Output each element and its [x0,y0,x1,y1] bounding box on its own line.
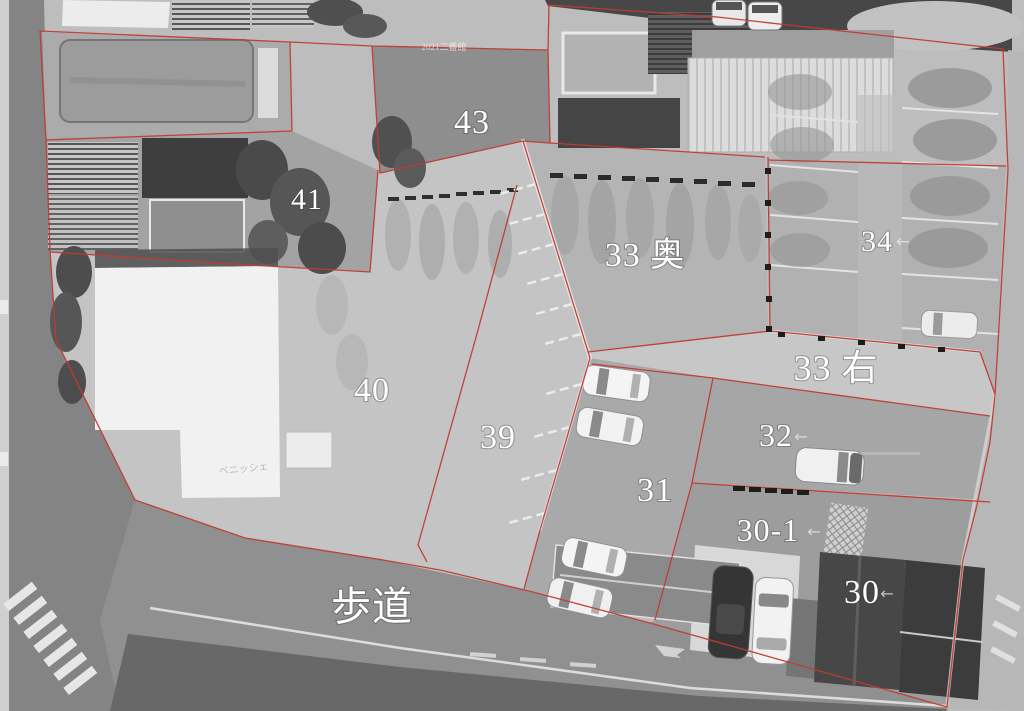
arrow-30-1: ← [807,522,820,541]
arrow-34: ← [896,232,910,252]
curb-mark [0,300,8,314]
roof-ridge [70,80,245,84]
tree [394,148,426,188]
dark-roof-center [558,98,680,148]
arrow-32: ← [794,427,807,446]
gray-roof-41 [150,200,244,252]
label-parcel-30-1: 30-1 [737,512,800,548]
tree [298,222,346,274]
faint-watermark-smudge [860,452,920,455]
label-parcel-31: 31 [637,472,673,509]
small-white-shed [286,432,332,468]
car-30-white [751,577,793,665]
charcoal-house-roof-2 [899,560,985,700]
tree [58,360,86,404]
corrugated-roof-1 [172,0,250,30]
white-strip-building [258,48,278,118]
driveway-34 [858,95,902,340]
aerial-parcel-map: 43 41 40 39 33 奥 34 ← 33 右 32 ← 31 30-1 … [0,0,1024,711]
label-parcel-33-migi: 33 右 [793,348,878,388]
arrow-30: ← [880,584,893,603]
label-sidewalk: 歩道 [331,584,413,629]
label-parcel-39: 39 [480,419,516,456]
map-canvas: 43 41 40 39 33 奥 34 ← 33 右 32 ← 31 30-1 … [0,0,1024,711]
dark-roof-41 [142,138,248,198]
flat-gray-roof [563,33,655,93]
corrugated-roof-41b [48,196,138,250]
label-parcel-34: 34 [861,225,893,258]
white-roof-top-left [62,0,170,28]
corrugated-roof-2 [252,0,314,28]
watermark-top: 2021二番館 [421,41,466,52]
car-32 [795,447,865,486]
corrugated-roof-41a [48,142,138,194]
gray-band-roof [692,30,894,58]
car-top-2 [748,2,782,30]
car-34 [921,310,978,339]
label-parcel-32: 32 [759,417,793,453]
car-top-1 [712,0,746,26]
label-parcel-43: 43 [454,104,490,141]
label-parcel-41: 41 [291,183,323,216]
label-parcel-33-oku: 33 奥 [605,236,686,274]
label-parcel-40: 40 [354,372,390,409]
tree [343,14,387,38]
label-parcel-30: 30 [844,574,880,611]
curb-mark [0,452,8,466]
